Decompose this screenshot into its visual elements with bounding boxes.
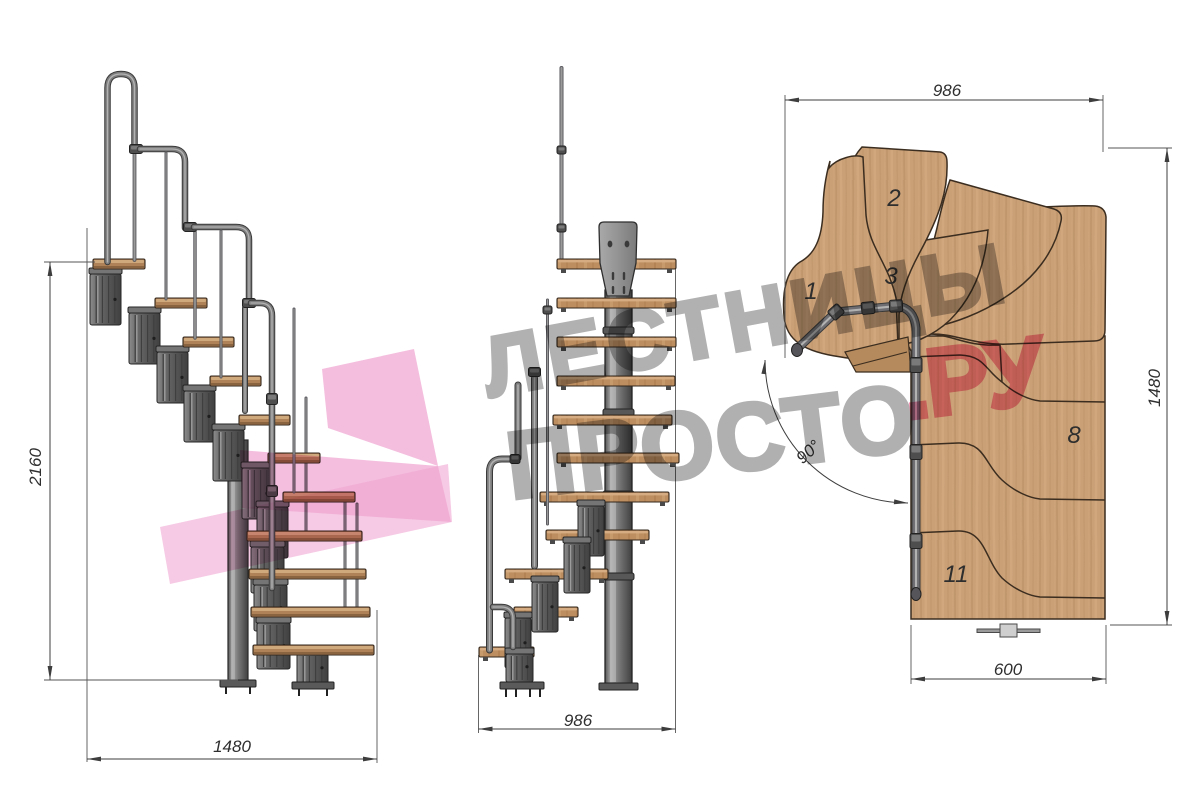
svg-text:2: 2	[886, 185, 900, 212]
svg-text:11: 11	[944, 561, 969, 588]
svg-text:1480: 1480	[213, 737, 251, 756]
svg-text:8: 8	[1067, 422, 1081, 449]
svg-text:986: 986	[933, 81, 962, 100]
svg-text:986: 986	[564, 711, 593, 730]
svg-text:2160: 2160	[26, 448, 45, 487]
svg-text:1480: 1480	[1145, 369, 1164, 407]
svg-text:600: 600	[994, 660, 1023, 679]
